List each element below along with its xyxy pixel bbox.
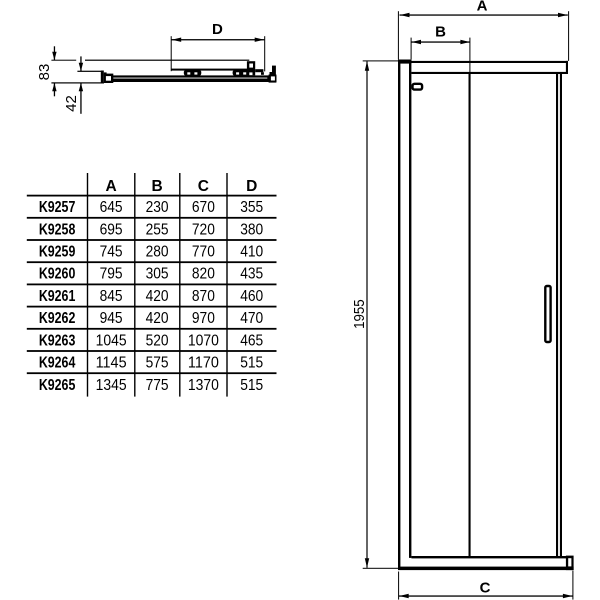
svg-text:420: 420: [146, 288, 169, 305]
svg-text:83: 83: [36, 64, 53, 81]
svg-text:230: 230: [146, 199, 169, 216]
svg-text:42: 42: [63, 95, 80, 112]
svg-text:515: 515: [240, 355, 263, 372]
svg-text:695: 695: [100, 221, 123, 238]
svg-text:A: A: [477, 0, 488, 15]
svg-text:K9264: K9264: [39, 355, 76, 372]
svg-text:1955: 1955: [351, 299, 368, 329]
svg-text:380: 380: [240, 221, 263, 238]
svg-text:970: 970: [192, 310, 215, 327]
svg-text:K9261: K9261: [39, 288, 76, 305]
svg-text:420: 420: [146, 310, 169, 327]
svg-text:820: 820: [192, 266, 215, 283]
svg-text:870: 870: [192, 288, 215, 305]
svg-text:1145: 1145: [96, 355, 127, 372]
svg-text:575: 575: [146, 355, 169, 372]
svg-text:K9265: K9265: [39, 377, 76, 394]
svg-text:845: 845: [100, 288, 123, 305]
svg-text:A: A: [105, 178, 116, 195]
svg-text:1345: 1345: [96, 377, 127, 394]
svg-text:1070: 1070: [188, 332, 219, 349]
svg-text:945: 945: [100, 310, 123, 327]
svg-text:K9257: K9257: [39, 199, 76, 216]
svg-text:305: 305: [146, 266, 169, 283]
svg-text:K9258: K9258: [39, 221, 76, 238]
svg-text:645: 645: [100, 199, 123, 216]
svg-text:255: 255: [146, 221, 169, 238]
svg-text:K9263: K9263: [39, 332, 76, 349]
svg-text:B: B: [435, 23, 446, 40]
svg-text:775: 775: [146, 377, 169, 394]
svg-text:C: C: [480, 579, 491, 596]
svg-text:D: D: [212, 21, 223, 38]
svg-text:515: 515: [240, 377, 263, 394]
svg-text:1170: 1170: [188, 355, 219, 372]
svg-text:K9259: K9259: [39, 244, 76, 261]
svg-text:280: 280: [146, 244, 169, 261]
svg-text:770: 770: [192, 244, 215, 261]
svg-text:745: 745: [100, 244, 123, 261]
svg-text:470: 470: [240, 310, 263, 327]
svg-text:795: 795: [100, 266, 123, 283]
svg-text:460: 460: [240, 288, 263, 305]
svg-text:720: 720: [192, 221, 215, 238]
svg-text:435: 435: [240, 266, 263, 283]
svg-text:D: D: [246, 178, 257, 195]
svg-text:520: 520: [146, 332, 169, 349]
svg-text:B: B: [151, 178, 162, 195]
svg-text:K9262: K9262: [39, 310, 76, 327]
svg-text:670: 670: [192, 199, 215, 216]
svg-text:K9260: K9260: [39, 266, 76, 283]
svg-text:355: 355: [240, 199, 263, 216]
svg-text:410: 410: [240, 244, 263, 261]
svg-text:1045: 1045: [96, 332, 127, 349]
svg-text:C: C: [198, 178, 209, 195]
svg-text:1370: 1370: [188, 377, 219, 394]
svg-text:465: 465: [240, 332, 263, 349]
